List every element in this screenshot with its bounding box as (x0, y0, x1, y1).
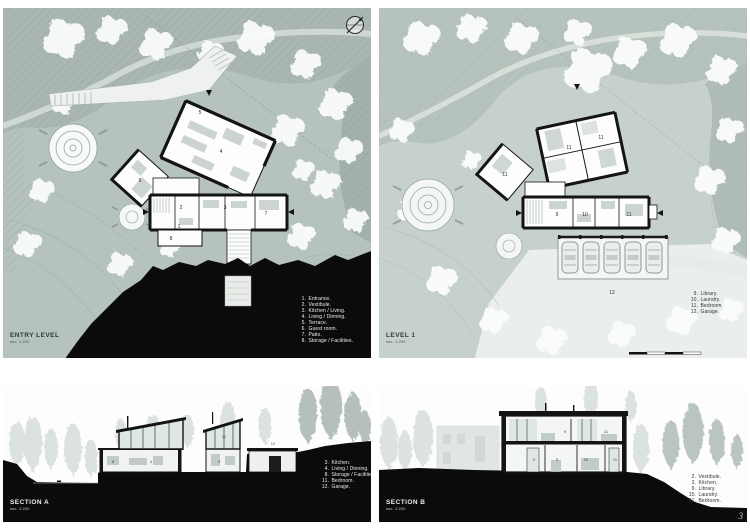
room-number: 11 (502, 172, 507, 178)
north-arrow-icon (347, 17, 364, 34)
section-scale: esc. 1:200 (386, 507, 406, 511)
legend-item: 8.Storage / Facilities. (297, 338, 369, 344)
connector (153, 178, 199, 196)
section-scale: esc. 1:200 (10, 507, 30, 511)
room-number: 8 (170, 236, 173, 242)
car-icon (583, 242, 599, 273)
room-number: 4 (220, 149, 223, 155)
plan-title: LEVEL 1 (386, 332, 415, 339)
small-round-pad (496, 233, 522, 259)
panel-section-b: 9 11 2 3 10 11 SECTION B esc. 1:200 2.Ve… (379, 386, 747, 522)
room-number: 12 (271, 441, 276, 446)
room-number: 7 (265, 211, 268, 217)
car-icon (562, 242, 578, 273)
legend-item-number: 12. (689, 309, 698, 315)
panel-entry-level-plan: 1 2 3 4 5 6 7 8 ENTRY LEVEL esc. 1:200 1… (3, 8, 371, 358)
legend-section-b: 2.Vestibule.3.Kitchen.9.Library.10.Laund… (687, 474, 745, 504)
legend-entry: 1.Entrance.2.Vestibule.3.Kitchen / Livin… (297, 296, 369, 344)
storage-annex (158, 230, 202, 246)
lower-bar (523, 197, 657, 228)
legend-item: 12.Garage. (689, 309, 745, 315)
plan-scale: esc. 1:200 (10, 340, 30, 344)
page-number: 3 (739, 511, 744, 521)
garage-section (247, 448, 298, 472)
room-number: 11 (598, 135, 603, 141)
section-a-drawing: 8 4 3 11 12 (3, 386, 371, 522)
legend-item-number: 8. (297, 338, 306, 344)
plan-title: ENTRY LEVEL (10, 332, 59, 339)
room-number: 5 (199, 110, 202, 116)
car-icon (625, 242, 641, 273)
legend-item: 12.Garage. (320, 484, 370, 490)
room-number: 1 (178, 224, 181, 230)
legend-item-label: Garage. (332, 484, 351, 490)
garage (558, 235, 668, 279)
shore-dock (225, 276, 251, 306)
room-number: 10 (582, 212, 588, 218)
legend-item-number: 11. (687, 498, 696, 504)
section-title: SECTION A (10, 499, 49, 506)
legend-section-a: 3.Kitchen.4.Living / Dinning.8.Storage /… (320, 460, 370, 490)
plan-scale: esc. 1:200 (386, 340, 406, 344)
scale-bar (629, 352, 701, 355)
building-section (499, 403, 628, 474)
car-icon (646, 242, 662, 273)
room-number: 6 (139, 178, 142, 184)
panel-level1-plan: 11 11 11 9 10 11 12 LEVEL 1 esc. 1:200 9… (379, 8, 747, 358)
legend-level1: 9.Library.10.Laundry.11.Bedroom.12.Garag… (689, 291, 745, 315)
room-number: 10 (584, 457, 589, 462)
legend-item-label: Storage / Facilities. (309, 338, 354, 344)
room-number: 11 (626, 212, 631, 218)
background-building (437, 426, 499, 472)
boat (57, 481, 61, 483)
room-number: 2 (180, 205, 183, 211)
section-title: SECTION B (386, 499, 425, 506)
panel-section-a: 8 4 3 11 12 SECTION A esc. 1:200 3.Kitch… (3, 386, 371, 522)
legend-item-number: 12. (320, 484, 329, 490)
room-number: 12 (609, 290, 615, 296)
room-number: 11 (566, 145, 571, 151)
car-icon (604, 242, 620, 273)
room-number: 3 (224, 205, 227, 211)
room-number: 9 (556, 212, 559, 218)
legend-item: 11.Bedroom. (687, 498, 745, 504)
legend-item-label: Bedroom. (699, 498, 721, 504)
legend-item-label: Garage. (701, 309, 720, 315)
